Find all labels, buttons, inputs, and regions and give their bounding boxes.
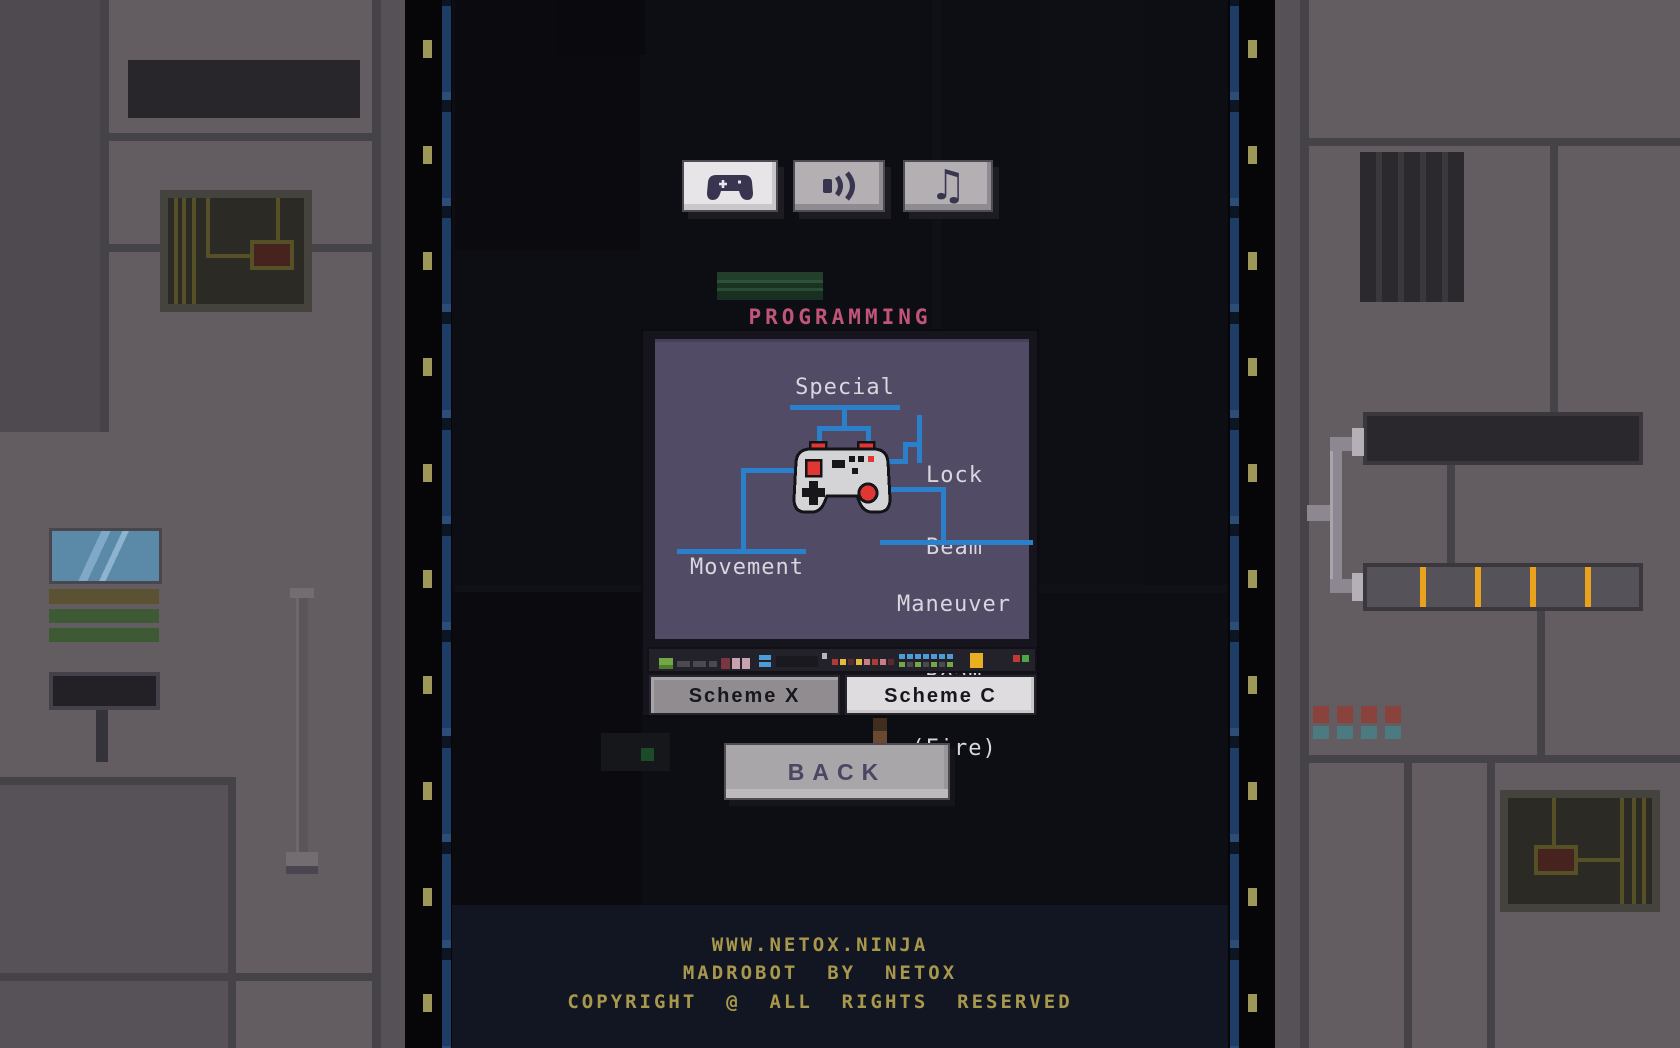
led-pink bbox=[732, 658, 740, 669]
right-wall bbox=[1275, 0, 1680, 1048]
connector-line bbox=[941, 487, 946, 544]
panel-seam bbox=[108, 133, 378, 141]
footer-url: WWW.NETOX.NINJA bbox=[440, 934, 1200, 956]
controls-tab-button[interactable] bbox=[682, 160, 778, 212]
green-led-square bbox=[641, 748, 654, 761]
panel-seam bbox=[100, 0, 109, 432]
panel-seam bbox=[1487, 763, 1495, 1048]
circuit-trace bbox=[1632, 798, 1636, 904]
circuit-trace bbox=[174, 198, 178, 304]
connector-line bbox=[880, 540, 1033, 545]
programming-dialog: Special Lock Beam Movement Maneuver Beam… bbox=[641, 329, 1039, 717]
panel-seam bbox=[0, 973, 380, 981]
orange-stripe bbox=[1475, 567, 1481, 607]
circuit-trace bbox=[1552, 798, 1556, 848]
led-dot bbox=[856, 659, 862, 665]
sound-tab-button[interactable] bbox=[793, 160, 885, 212]
led-dot bbox=[1013, 655, 1020, 662]
led-white bbox=[822, 653, 827, 659]
panel-seam bbox=[1309, 755, 1680, 763]
connector-line bbox=[917, 415, 922, 463]
controller-illustration bbox=[792, 440, 892, 522]
circuit-board bbox=[1500, 790, 1660, 912]
panel-seam bbox=[1537, 611, 1545, 755]
speaker-icon bbox=[819, 170, 859, 202]
rail-marker bbox=[423, 0, 432, 1048]
pipe-vertical bbox=[1330, 437, 1342, 593]
panel-seam bbox=[1550, 138, 1558, 412]
panel-seam bbox=[1309, 138, 1680, 146]
dark-slot-bar bbox=[1363, 412, 1643, 465]
led-red bbox=[721, 658, 730, 669]
status-bar-green bbox=[49, 609, 159, 623]
vent-bars bbox=[1360, 152, 1464, 302]
rail-marker bbox=[1248, 0, 1257, 1048]
wall-bottom-panel bbox=[0, 779, 228, 1048]
connector-line bbox=[741, 468, 799, 473]
readout-panel bbox=[49, 672, 160, 710]
page-title: PROGRAMMING bbox=[641, 305, 1039, 329]
led-dot bbox=[864, 659, 870, 665]
panel-seam bbox=[228, 777, 236, 1048]
gamepad-icon bbox=[706, 170, 754, 202]
mini-panel bbox=[601, 733, 670, 771]
rail-light-bar bbox=[1230, 0, 1239, 1048]
led-pink bbox=[742, 658, 750, 669]
pipe-plate bbox=[1352, 428, 1364, 456]
back-button[interactable]: BACK bbox=[724, 743, 950, 800]
led-dot bbox=[880, 659, 886, 665]
status-bar-olive bbox=[49, 589, 159, 604]
label-lock-line1: Lock bbox=[926, 464, 1040, 488]
green-vent bbox=[717, 272, 823, 300]
orange-stripe bbox=[1530, 567, 1536, 607]
tower-panel bbox=[1040, 0, 1145, 585]
tower-panel bbox=[555, 0, 645, 55]
led-dot bbox=[888, 659, 894, 665]
circuit-trace bbox=[206, 198, 210, 258]
led-dot bbox=[872, 659, 878, 665]
led-dot bbox=[848, 659, 854, 665]
wall-edge-strip bbox=[1275, 0, 1300, 1048]
led-blue-bar bbox=[759, 655, 771, 660]
led-bank-blue bbox=[899, 654, 953, 659]
readout-stem bbox=[96, 710, 108, 762]
led-gray bbox=[677, 661, 690, 667]
circuit-trace bbox=[1578, 858, 1620, 862]
connector-line bbox=[888, 487, 946, 492]
circuit-chip bbox=[1534, 845, 1578, 875]
panel-seam bbox=[1404, 763, 1412, 1048]
led-gray bbox=[709, 661, 717, 667]
led-green bbox=[659, 658, 673, 669]
circuit-chip bbox=[250, 240, 294, 270]
circuit-trace bbox=[1642, 798, 1646, 904]
controller-diagram-screen: Special Lock Beam Movement Maneuver Beam… bbox=[655, 339, 1029, 639]
scheme-c-button[interactable]: Scheme C bbox=[845, 675, 1036, 715]
left-wall bbox=[0, 0, 405, 1048]
led-blue-bar bbox=[759, 662, 771, 667]
recessed-slot bbox=[776, 656, 818, 667]
connector-line bbox=[677, 549, 806, 554]
circuit-trace bbox=[192, 198, 196, 304]
circuit-trace bbox=[210, 254, 250, 258]
music-tab-button[interactable]: ♫ bbox=[903, 160, 993, 212]
label-movement: Movement bbox=[647, 556, 847, 580]
panel-seam bbox=[0, 777, 236, 785]
led-teal-row bbox=[1313, 726, 1401, 739]
wall-dark-column bbox=[0, 0, 100, 432]
footer-credit: MADROBOT BY NETOX bbox=[440, 962, 1200, 984]
led-dot bbox=[1022, 655, 1029, 662]
striped-bar bbox=[1363, 563, 1643, 611]
footer-copyright: COPYRIGHT @ ALL RIGHTS RESERVED bbox=[440, 991, 1200, 1013]
panel-seam bbox=[1447, 465, 1455, 563]
pole-base bbox=[286, 852, 318, 866]
circuit-trace bbox=[276, 198, 280, 244]
music-note-icon: ♫ bbox=[935, 164, 962, 208]
panel-seam bbox=[372, 0, 381, 1048]
wall-edge-strip bbox=[381, 0, 405, 1048]
game-options-screen: ♫ PROGRAMMING Special Lock Beam Movement… bbox=[0, 0, 1680, 1048]
led-yellow bbox=[970, 653, 983, 668]
status-bar-green bbox=[49, 628, 159, 642]
led-red-row bbox=[1313, 706, 1401, 723]
circuit-trace bbox=[182, 198, 186, 304]
glass-window bbox=[49, 528, 162, 584]
circuit-trace bbox=[1620, 798, 1624, 904]
pole-base-shadow bbox=[286, 866, 318, 874]
led-gray bbox=[693, 661, 706, 667]
led-bank-green bbox=[899, 662, 953, 667]
pole-cap bbox=[290, 588, 314, 598]
pole-rod bbox=[296, 598, 308, 854]
indicator-strip bbox=[647, 647, 1037, 673]
label-special: Special bbox=[745, 376, 945, 400]
led-dot bbox=[840, 659, 846, 665]
panel-seam bbox=[1300, 0, 1309, 1048]
label-maneuver-line1: Maneuver bbox=[854, 593, 1054, 617]
vent-slot bbox=[128, 60, 360, 118]
rail-light-bar bbox=[442, 0, 451, 1048]
orange-stripe bbox=[1420, 567, 1426, 607]
orange-stripe bbox=[1585, 567, 1591, 607]
connector-line bbox=[741, 468, 746, 553]
connector-line bbox=[817, 426, 871, 431]
led-dot bbox=[832, 659, 838, 665]
circuit-board bbox=[160, 190, 312, 312]
scheme-x-button[interactable]: Scheme X bbox=[649, 675, 840, 715]
